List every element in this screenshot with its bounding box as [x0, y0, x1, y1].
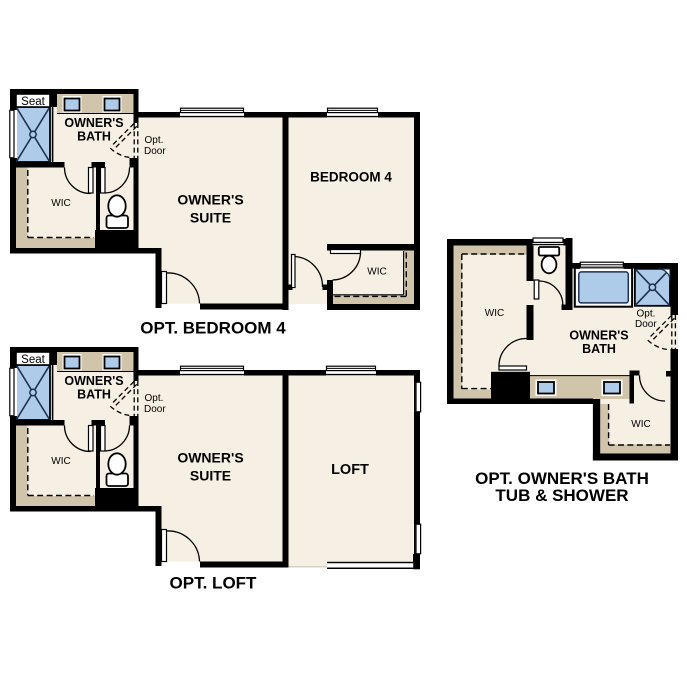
- svg-text:Seat: Seat: [21, 354, 45, 366]
- svg-text:OWNER'S: OWNER'S: [177, 192, 243, 208]
- svg-text:Opt.: Opt.: [145, 393, 164, 404]
- svg-text:Door: Door: [635, 319, 657, 330]
- svg-text:BEDROOM 4: BEDROOM 4: [310, 170, 392, 185]
- svg-text:SUITE: SUITE: [190, 468, 231, 484]
- svg-text:Opt.: Opt.: [637, 309, 656, 320]
- svg-text:Door: Door: [144, 404, 166, 415]
- svg-text:WIC: WIC: [631, 419, 650, 430]
- svg-text:SUITE: SUITE: [190, 210, 231, 226]
- svg-text:Door: Door: [144, 146, 166, 157]
- svg-text:OPT. LOFT: OPT. LOFT: [170, 574, 258, 593]
- svg-text:OWNER'S: OWNER'S: [177, 450, 243, 466]
- svg-text:Seat: Seat: [21, 96, 45, 108]
- svg-text:OWNER'S: OWNER'S: [64, 374, 123, 388]
- svg-text:BATH: BATH: [582, 342, 616, 356]
- svg-text:OWNER'S: OWNER'S: [64, 116, 123, 130]
- svg-text:OWNER'S: OWNER'S: [569, 329, 628, 343]
- svg-text:WIC: WIC: [51, 198, 70, 209]
- svg-text:TUB & SHOWER: TUB & SHOWER: [495, 486, 628, 505]
- svg-text:BATH: BATH: [77, 388, 111, 402]
- svg-text:LOFT: LOFT: [331, 462, 369, 478]
- svg-text:BATH: BATH: [77, 130, 111, 144]
- svg-text:Opt.: Opt.: [145, 135, 164, 146]
- svg-text:WIC: WIC: [51, 456, 70, 467]
- svg-text:OPT. BEDROOM 4: OPT. BEDROOM 4: [140, 319, 286, 338]
- svg-text:WIC: WIC: [485, 308, 504, 319]
- svg-text:WIC: WIC: [367, 267, 386, 278]
